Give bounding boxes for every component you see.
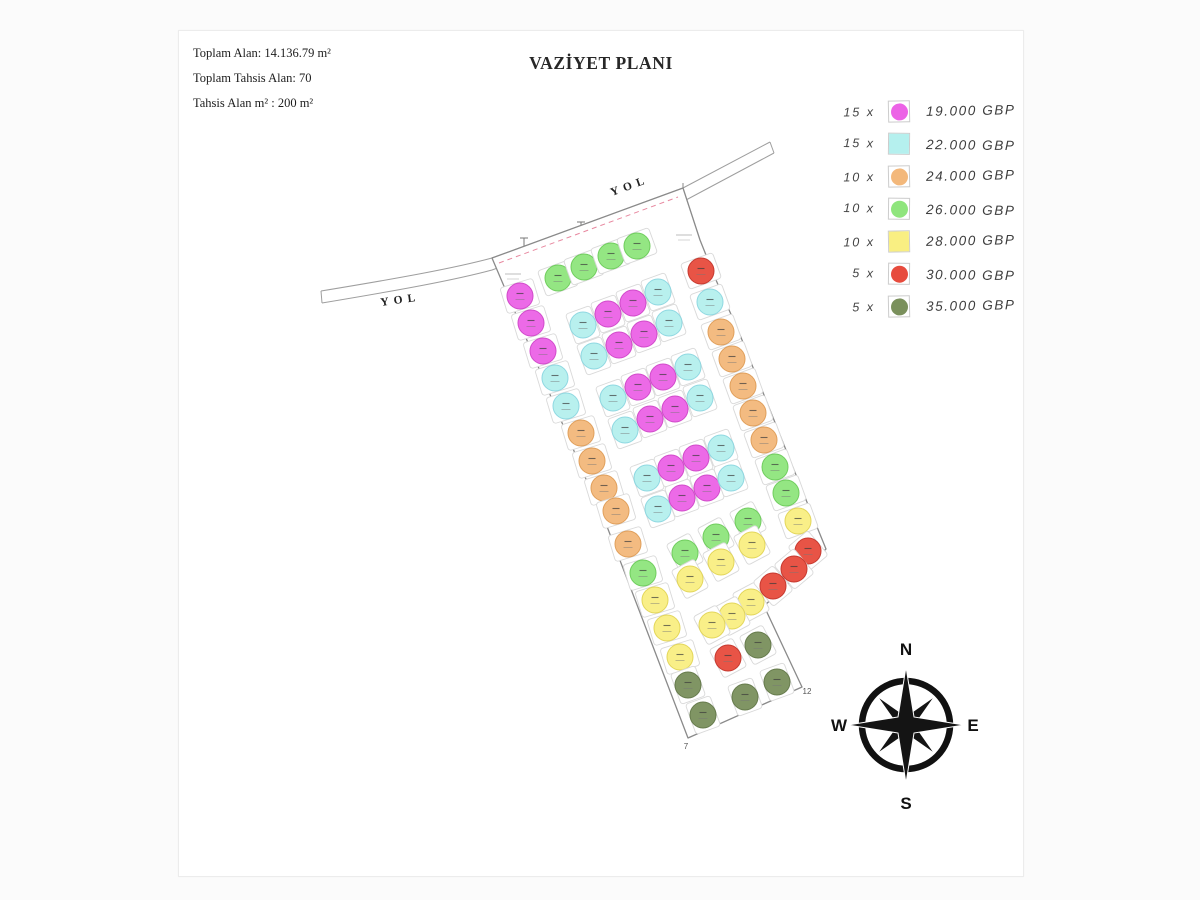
allocation-size-line: Tahsis Alan m² : 200 m² xyxy=(193,91,331,116)
legend-swatch xyxy=(888,197,910,219)
compass-main-star xyxy=(848,667,964,783)
legend-price: 24.000 GBP xyxy=(926,167,1016,184)
legend-count: 15 x xyxy=(829,136,875,151)
legend-swatch xyxy=(888,262,910,284)
site-plan-document: { "page": { "title": "VAZİYET PLANI", "i… xyxy=(0,0,1200,900)
legend-count: 10 x xyxy=(829,170,875,185)
compass-west-label: W xyxy=(831,716,848,735)
legend-color-dot xyxy=(890,298,907,315)
legend-color-dot xyxy=(890,265,907,282)
legend-count: 5 x xyxy=(829,300,875,315)
legend-item: 15 x22.000 GBP xyxy=(829,126,1016,161)
legend-color-dot xyxy=(890,168,907,185)
legend-swatch xyxy=(888,295,910,317)
legend-price: 28.000 GBP xyxy=(926,232,1016,249)
legend-item: 15 x19.000 GBP xyxy=(829,93,1016,129)
legend-swatch xyxy=(888,100,910,122)
legend-item: 10 x28.000 GBP xyxy=(829,223,1016,259)
legend-color-dot xyxy=(890,103,907,120)
compass-rose: N S W E xyxy=(831,629,981,814)
legend-price: 22.000 GBP xyxy=(926,136,1016,152)
legend-swatch xyxy=(888,132,910,154)
price-legend: 15 x19.000 GBP15 x22.000 GBP10 x24.000 G… xyxy=(829,95,1016,323)
legend-price: 19.000 GBP xyxy=(926,102,1016,119)
legend-count: 15 x xyxy=(829,105,875,120)
page-title: VAZİYET PLANI xyxy=(179,53,1023,74)
legend-color-dot xyxy=(889,133,909,153)
legend-count: 10 x xyxy=(829,235,875,250)
compass-north-label: N xyxy=(900,640,912,659)
legend-price: 26.000 GBP xyxy=(926,201,1016,217)
legend-swatch xyxy=(888,165,910,187)
legend-color-dot xyxy=(890,200,907,217)
plan-sheet: Toplam Alan: 14.136.79 m² Toplam Tahsis … xyxy=(178,30,1024,877)
legend-count: 10 x xyxy=(829,201,875,216)
legend-color-dot xyxy=(889,232,909,252)
legend-item: 5 x30.000 GBP xyxy=(829,256,1016,291)
legend-price: 35.000 GBP xyxy=(926,297,1016,314)
legend-item: 10 x24.000 GBP xyxy=(829,158,1016,194)
legend-item: 10 x26.000 GBP xyxy=(829,191,1016,226)
compass-east-label: E xyxy=(967,716,978,735)
legend-swatch xyxy=(888,230,910,252)
legend-count: 5 x xyxy=(829,266,875,281)
legend-price: 30.000 GBP xyxy=(926,266,1016,282)
legend-item: 5 x35.000 GBP xyxy=(829,288,1016,324)
compass-south-label: S xyxy=(900,794,911,813)
